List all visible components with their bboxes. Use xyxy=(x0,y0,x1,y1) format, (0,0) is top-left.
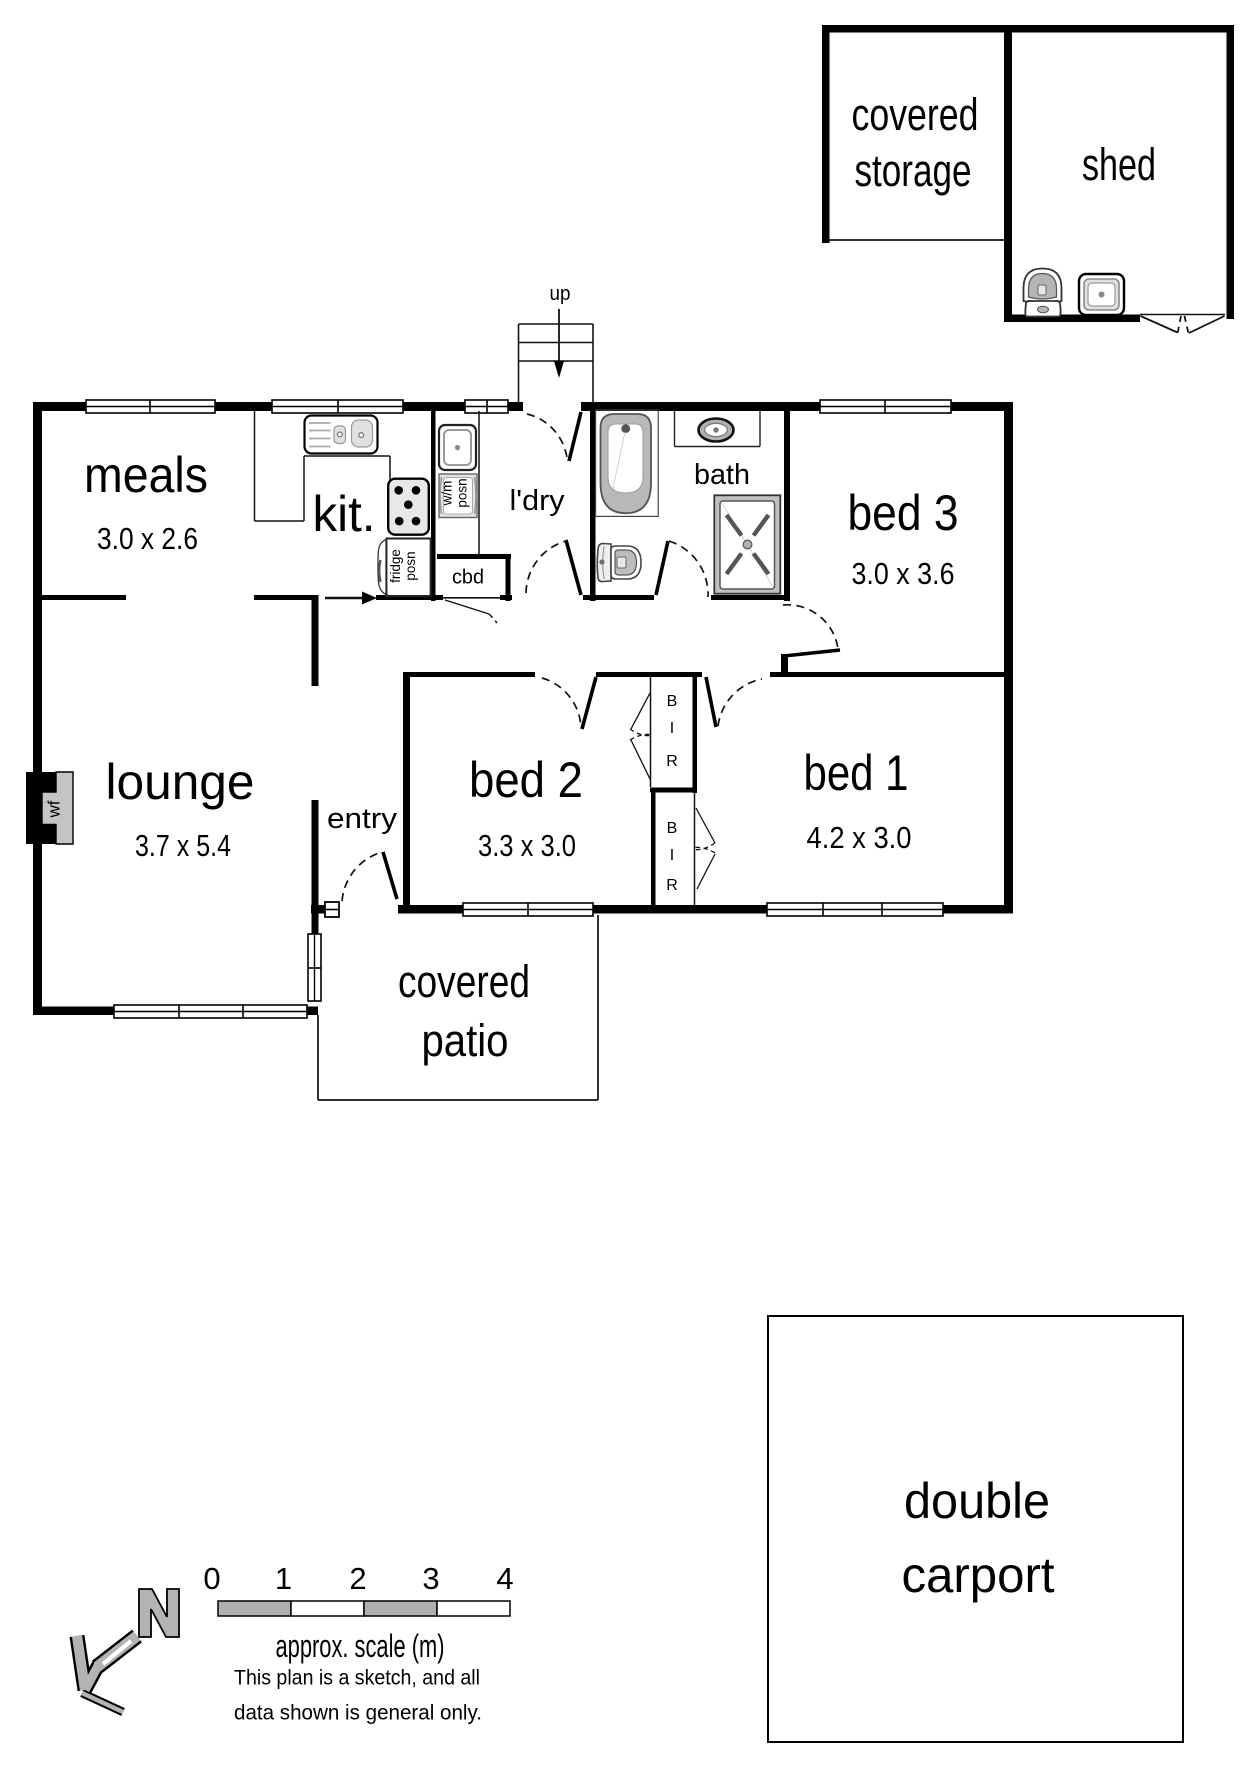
svg-text:cbd: cbd xyxy=(452,566,484,589)
svg-text:3: 3 xyxy=(422,1561,439,1596)
svg-text:entry: entry xyxy=(327,803,398,835)
svg-text:wf: wf xyxy=(45,800,64,818)
svg-text:0: 0 xyxy=(203,1561,220,1596)
svg-text:data shown is general only.: data shown is general only. xyxy=(234,1702,482,1725)
svg-text:patio: patio xyxy=(422,1015,509,1066)
svg-text:bath: bath xyxy=(694,459,750,491)
svg-text:shed: shed xyxy=(1082,139,1156,190)
svg-text:w/m: w/m xyxy=(440,481,455,507)
svg-text:up: up xyxy=(550,282,571,305)
svg-text:bed 3: bed 3 xyxy=(848,485,959,541)
svg-text:R: R xyxy=(666,753,678,770)
svg-text:double: double xyxy=(904,1473,1050,1529)
svg-text:l'dry: l'dry xyxy=(510,485,566,517)
svg-text:covered: covered xyxy=(398,956,530,1007)
svg-text:3.0 x 3.6: 3.0 x 3.6 xyxy=(852,557,955,591)
svg-text:3.7 x 5.4: 3.7 x 5.4 xyxy=(135,829,231,863)
svg-text:carport: carport xyxy=(902,1547,1055,1603)
svg-text:covered: covered xyxy=(852,89,979,140)
svg-text:approx. scale (m): approx. scale (m) xyxy=(276,1628,445,1664)
svg-text:4: 4 xyxy=(496,1561,513,1596)
svg-text:posn: posn xyxy=(403,551,418,580)
svg-text:meals: meals xyxy=(84,447,208,503)
svg-text:posn: posn xyxy=(455,478,470,507)
svg-text:I: I xyxy=(670,847,674,864)
svg-text:2: 2 xyxy=(349,1561,366,1596)
svg-text:lounge: lounge xyxy=(106,754,255,810)
svg-text:B: B xyxy=(667,820,678,837)
svg-text:bed 2: bed 2 xyxy=(469,752,583,808)
svg-text:1: 1 xyxy=(275,1561,292,1596)
svg-text:3.3 x 3.0: 3.3 x 3.0 xyxy=(478,829,576,863)
svg-text:3.0 x 2.6: 3.0 x 2.6 xyxy=(97,522,198,556)
svg-text:B: B xyxy=(667,693,678,710)
svg-text:I: I xyxy=(670,720,674,737)
svg-text:fridge: fridge xyxy=(388,549,403,583)
svg-text:R: R xyxy=(666,877,678,894)
svg-text:storage: storage xyxy=(855,145,972,196)
svg-text:kit.: kit. xyxy=(313,486,376,542)
svg-text:4.2 x 3.0: 4.2 x 3.0 xyxy=(807,821,912,855)
svg-text:This plan is a sketch, and all: This plan is a sketch, and all xyxy=(234,1667,480,1690)
svg-text:bed 1: bed 1 xyxy=(804,745,909,801)
